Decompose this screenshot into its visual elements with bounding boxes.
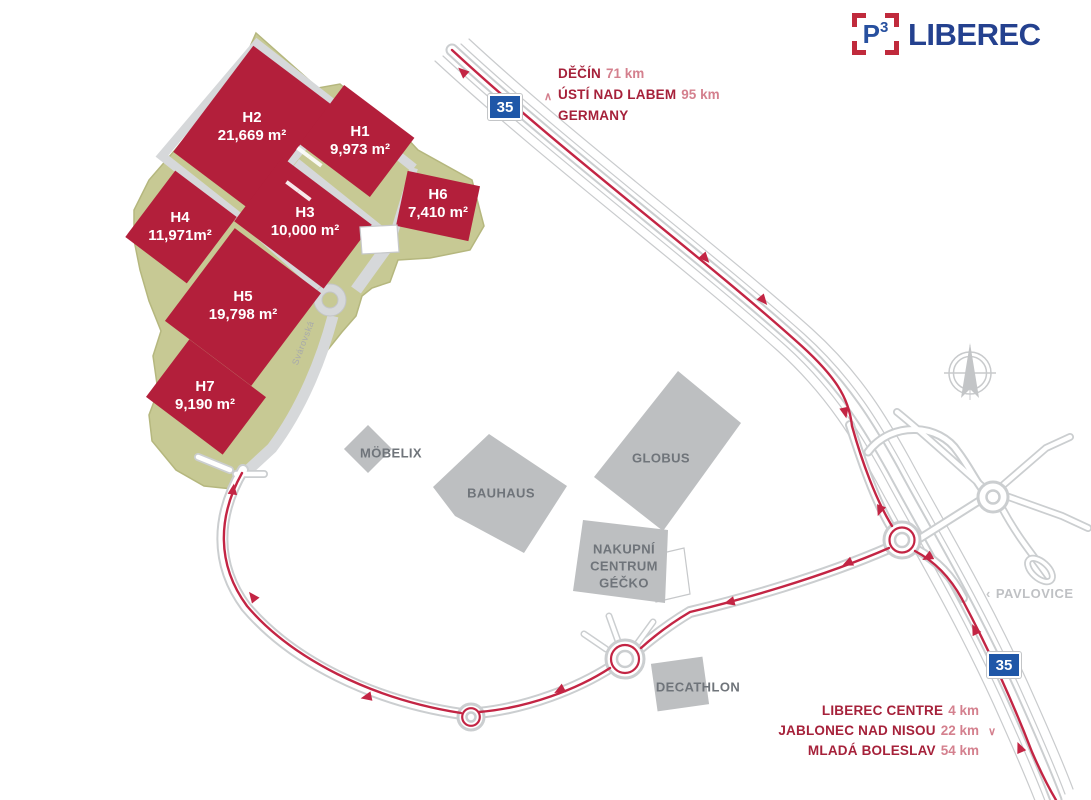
destination-liberec-centre: LIBEREC CENTRE 4 km xyxy=(778,703,979,723)
destination-germany: GERMANY xyxy=(558,108,720,129)
destinations-north: DĚČÍN 71 km ∧ ÚSTÍ NAD LABEM 95 km GERMA… xyxy=(558,66,720,129)
logo-park-name: LIBEREC xyxy=(908,19,1041,50)
interchange-roads xyxy=(850,412,1088,598)
destination-mlada-boleslav: MLADÁ BOLESLAV 54 km xyxy=(778,743,979,763)
poi-label-decathlon: DECATHLON xyxy=(656,679,740,696)
building-label-h5: H519,798 m² xyxy=(209,288,277,324)
poi-label-mobelix: MÖBELIX xyxy=(360,445,422,462)
poi-label-gecko: NAKUPNÍ CENTRUM GÉČKO xyxy=(590,541,658,592)
destination-usti: ∧ ÚSTÍ NAD LABEM 95 km xyxy=(558,87,720,108)
direction-down-chevron: ∨ xyxy=(988,725,996,738)
poi-label-globus: GLOBUS xyxy=(632,450,690,467)
bracket-icon xyxy=(852,41,866,55)
building-label-h2: H221,669 m² xyxy=(218,109,286,145)
park-roundabout xyxy=(314,284,346,316)
motorway-35 xyxy=(435,39,1073,800)
destination-decin: DĚČÍN 71 km xyxy=(558,66,720,87)
destinations-south: LIBEREC CENTRE 4 km JABLONEC NAD NISOU 2… xyxy=(778,703,979,763)
building-label-h3: H310,000 m² xyxy=(271,204,339,240)
p3-logo-mark: P3 xyxy=(852,13,899,55)
map-graphic xyxy=(0,0,1091,800)
destination-jablonec: JABLONEC NAD NISOU 22 km ∨ xyxy=(778,723,979,743)
place-label-pavlovice: ‹PAVLOVICE xyxy=(986,586,1074,601)
logo: P3 LIBEREC xyxy=(852,13,1041,55)
building-label-h7: H79,190 m² xyxy=(175,378,235,414)
retail-buildings xyxy=(344,371,741,711)
compass-icon xyxy=(944,343,996,400)
direction-up-chevron: ∧ xyxy=(544,90,552,103)
poi-label-bauhaus: BAUHAUS xyxy=(467,485,535,502)
building-label-h4: H411,971m² xyxy=(148,209,211,245)
building-label-h6: H67,410 m² xyxy=(408,186,468,222)
building-label-h1: H19,973 m² xyxy=(330,123,390,159)
direction-left-chevron: ‹ xyxy=(986,586,991,601)
bracket-icon xyxy=(852,13,866,27)
bracket-icon xyxy=(885,41,899,55)
route-sign-35-north: 35 xyxy=(488,94,522,120)
map-canvas: H221,669 m² H19,973 m² H310,000 m² H411,… xyxy=(0,0,1091,800)
route-sign-35-south: 35 xyxy=(987,652,1021,678)
